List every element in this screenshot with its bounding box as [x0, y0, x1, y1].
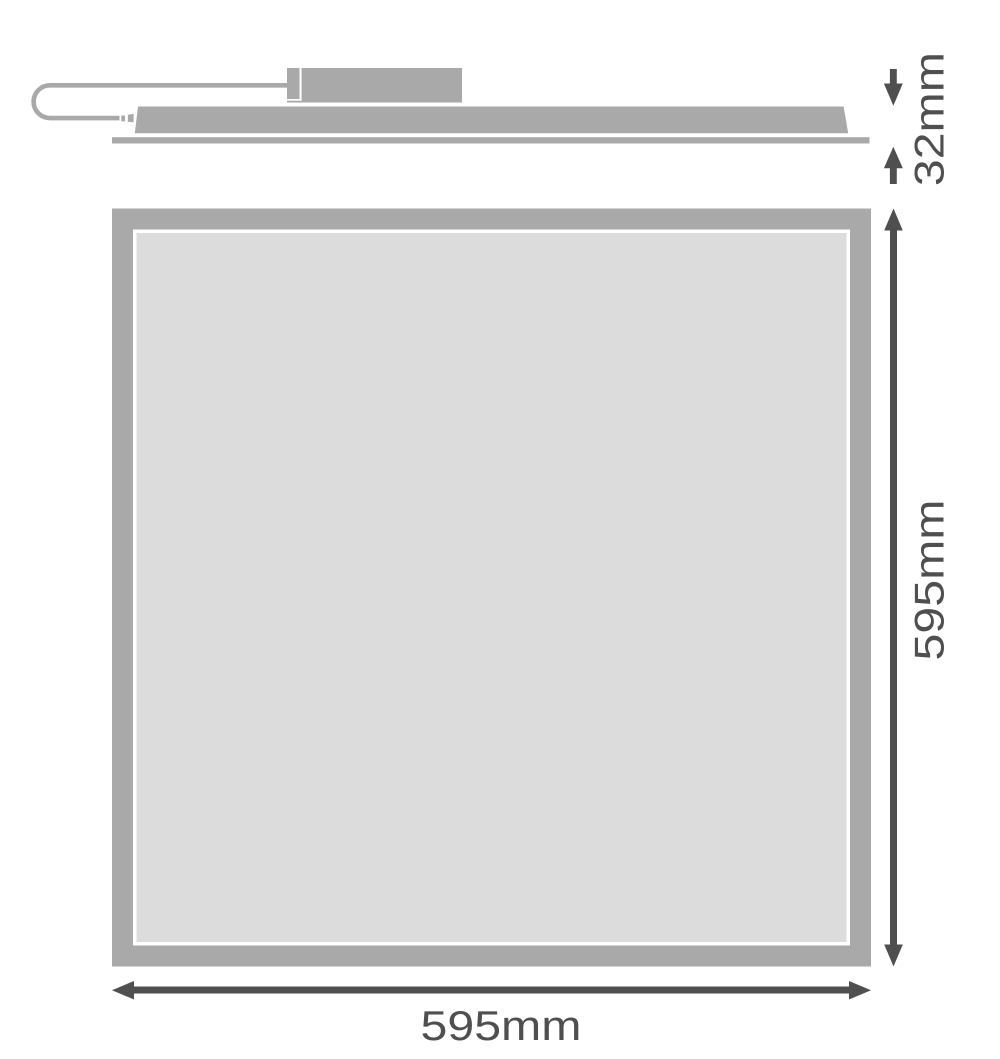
- svg-text:595mm: 595mm: [421, 1002, 582, 1049]
- svg-text:32mm: 32mm: [906, 52, 953, 186]
- svg-text:595mm: 595mm: [906, 500, 953, 661]
